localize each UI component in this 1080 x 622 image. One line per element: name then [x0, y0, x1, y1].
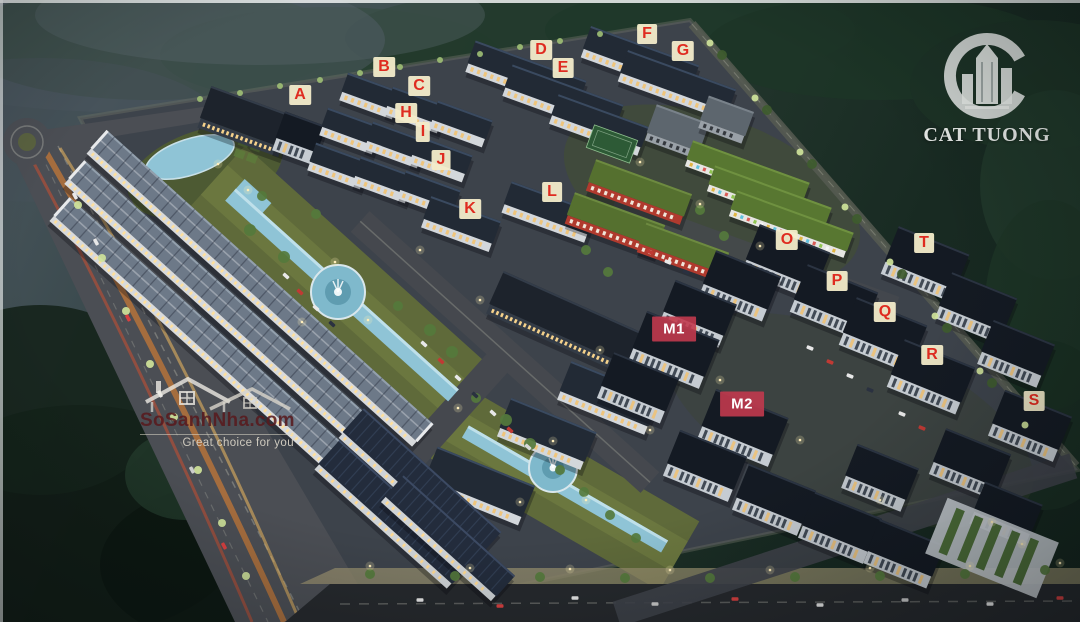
building-label-C: C	[408, 76, 430, 96]
image-border-left	[0, 0, 3, 622]
building-label-G: G	[672, 41, 694, 61]
sosanhnha-watermark: SoSanhNha.com Great choice for you	[140, 370, 294, 449]
watermark-tagline: Great choice for you	[140, 437, 294, 449]
building-label-layer: ABCDEFGHIJKLM1M2OPQRST	[0, 0, 1080, 622]
building-label-F: F	[637, 24, 657, 44]
cat-tuong-logo-icon	[925, 26, 1049, 126]
building-label-Q: Q	[874, 302, 896, 322]
building-label-T: T	[914, 233, 934, 253]
building-label-B: B	[373, 57, 395, 77]
building-label-O: O	[776, 230, 798, 250]
house-watermark-icon	[140, 370, 292, 414]
building-label-K: K	[459, 199, 481, 219]
building-label-M2: M2	[720, 392, 764, 417]
building-label-H: H	[395, 103, 417, 123]
aerial-site-rendering: ABCDEFGHIJKLM1M2OPQRST CAT TUONG SoSanhN…	[0, 0, 1080, 622]
cat-tuong-logo: CAT TUONG	[923, 26, 1051, 147]
building-label-P: P	[827, 271, 848, 291]
cat-tuong-logo-text: CAT TUONG	[923, 124, 1051, 147]
image-border-top	[0, 0, 1080, 3]
building-label-I: I	[416, 122, 430, 142]
watermark-divider	[140, 434, 294, 435]
building-label-R: R	[921, 345, 943, 365]
watermark-site-text: SoSanhNha.com	[140, 410, 294, 432]
building-label-L: L	[542, 182, 562, 202]
building-label-E: E	[553, 58, 574, 78]
building-label-M1: M1	[652, 317, 696, 342]
building-label-A: A	[289, 85, 311, 105]
building-label-S: S	[1024, 391, 1045, 411]
building-label-D: D	[530, 40, 552, 60]
building-label-J: J	[432, 150, 451, 170]
